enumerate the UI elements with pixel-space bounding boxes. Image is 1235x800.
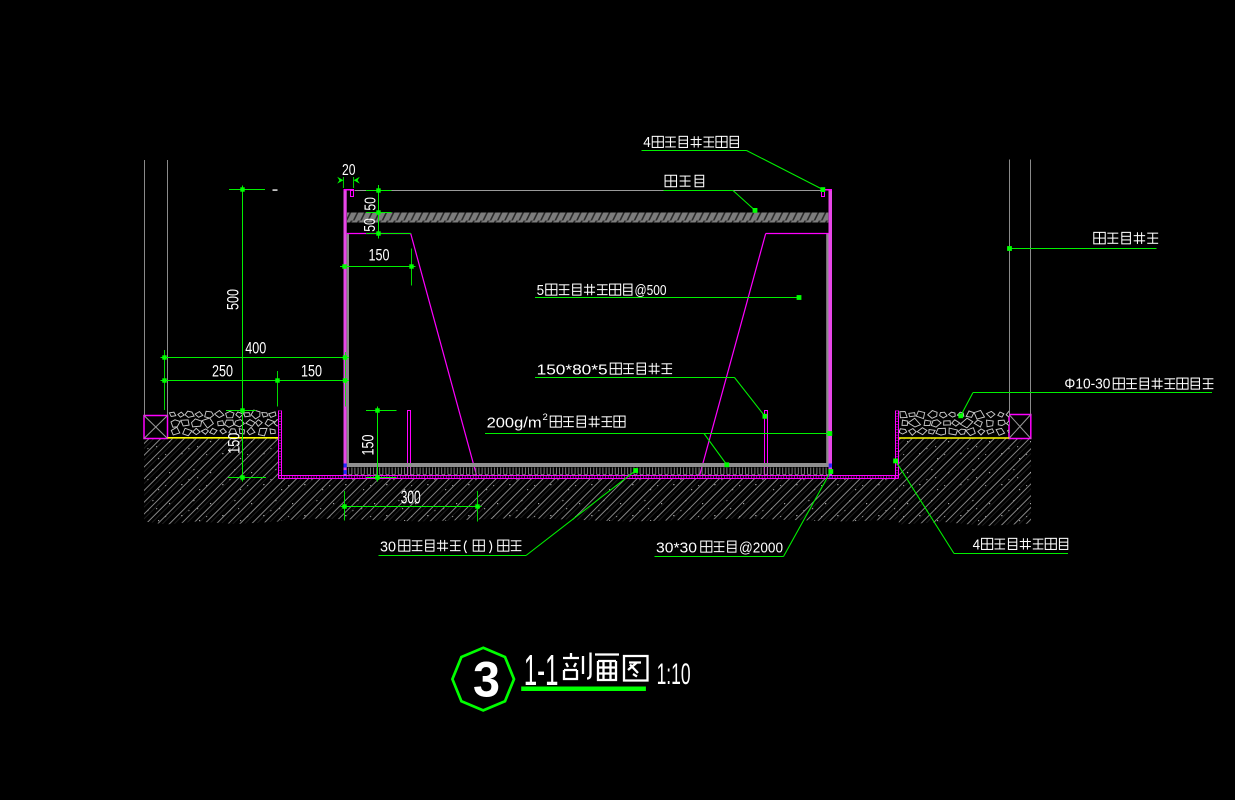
svg-text:Φ10-30: Φ10-30 [1064, 376, 1110, 393]
svg-text:@2000: @2000 [739, 541, 783, 557]
svg-text:4: 4 [973, 538, 981, 554]
svg-text:150: 150 [359, 435, 378, 456]
svg-text:150*80*5: 150*80*5 [537, 363, 608, 379]
svg-text:250: 250 [212, 362, 233, 381]
svg-text:30*30: 30*30 [656, 541, 697, 557]
svg-text:1:10: 1:10 [657, 658, 691, 691]
svg-text:400: 400 [245, 339, 266, 358]
svg-text:50: 50 [362, 218, 379, 232]
svg-text:150: 150 [301, 362, 322, 381]
svg-text:500: 500 [224, 289, 243, 310]
svg-text:4: 4 [643, 135, 651, 151]
svg-text:@500: @500 [635, 283, 667, 299]
svg-text:300: 300 [401, 488, 421, 508]
svg-text:200g/m: 200g/m [487, 416, 542, 432]
svg-text:30: 30 [380, 540, 396, 556]
svg-text:150: 150 [225, 433, 244, 454]
svg-text:20: 20 [342, 162, 356, 179]
svg-text:150: 150 [369, 246, 390, 265]
svg-text:50: 50 [363, 197, 380, 211]
svg-text:5: 5 [537, 283, 545, 299]
svg-text:2: 2 [543, 412, 548, 423]
svg-text:3: 3 [473, 652, 500, 708]
